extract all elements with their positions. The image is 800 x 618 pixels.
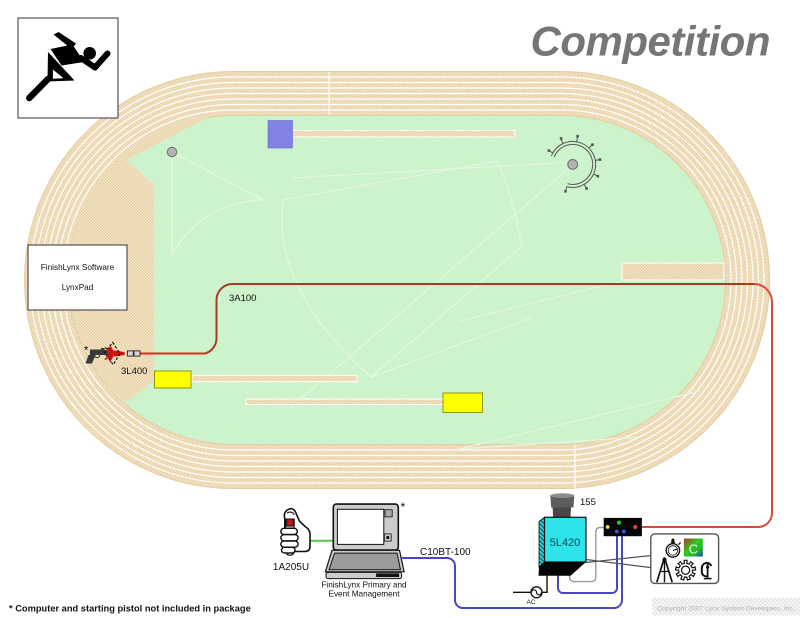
svg-text:LynxPad: LynxPad [62, 283, 94, 292]
svg-text:C10BT-100: C10BT-100 [420, 547, 471, 558]
svg-text:3L400: 3L400 [121, 366, 147, 377]
svg-text:FinishLynx Software: FinishLynx Software [41, 263, 115, 272]
svg-text:1A205U: 1A205U [273, 562, 309, 573]
svg-text:FinishLynx Primary and: FinishLynx Primary and [321, 581, 407, 590]
svg-text:*: * [84, 345, 89, 357]
svg-text:C: C [689, 542, 698, 557]
svg-text:* Computer and starting pistol: * Computer and starting pistol not inclu… [9, 604, 251, 614]
svg-text:155: 155 [580, 497, 596, 508]
svg-text:Competition: Competition [531, 18, 770, 65]
svg-text:3A100: 3A100 [229, 293, 256, 304]
svg-text:AC: AC [526, 599, 535, 606]
svg-text:Copyright 2007 Lynx System Dev: Copyright 2007 Lynx System Developers, I… [657, 606, 795, 613]
svg-text:Event Management: Event Management [328, 590, 400, 599]
svg-text:5L420: 5L420 [550, 537, 581, 549]
svg-text:*: * [401, 500, 406, 514]
